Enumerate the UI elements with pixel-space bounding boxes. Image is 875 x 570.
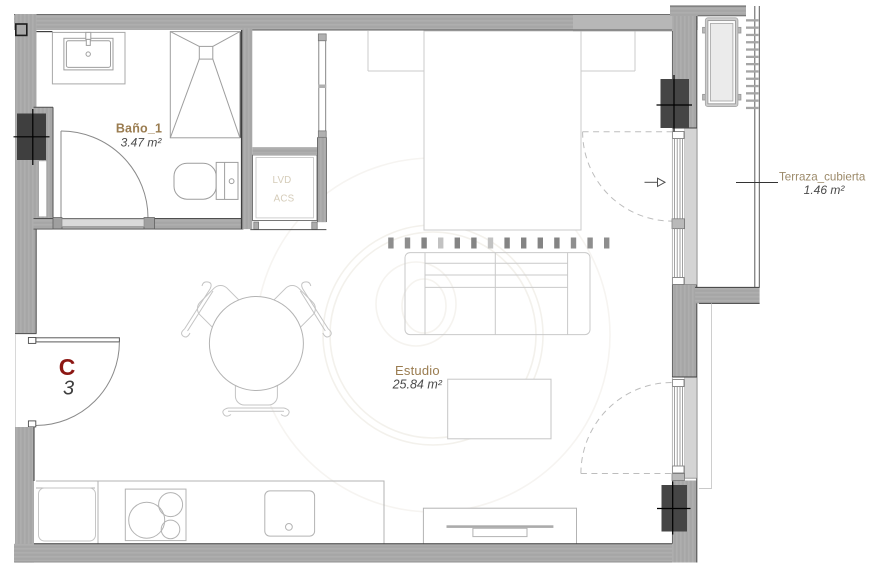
- svg-text:25.84 m²: 25.84 m²: [392, 378, 443, 392]
- svg-text:1.46 m²: 1.46 m²: [804, 183, 846, 197]
- svg-text:Estudio: Estudio: [395, 363, 440, 378]
- svg-text:3.47 m²: 3.47 m²: [121, 136, 163, 150]
- svg-text:Terraza_cubierta: Terraza_cubierta: [779, 171, 866, 184]
- svg-text:Baño_1: Baño_1: [116, 122, 162, 136]
- svg-text:C: C: [59, 354, 76, 380]
- svg-text:ACS: ACS: [274, 194, 295, 205]
- svg-text:LVD: LVD: [273, 175, 292, 186]
- svg-text:3: 3: [63, 378, 74, 400]
